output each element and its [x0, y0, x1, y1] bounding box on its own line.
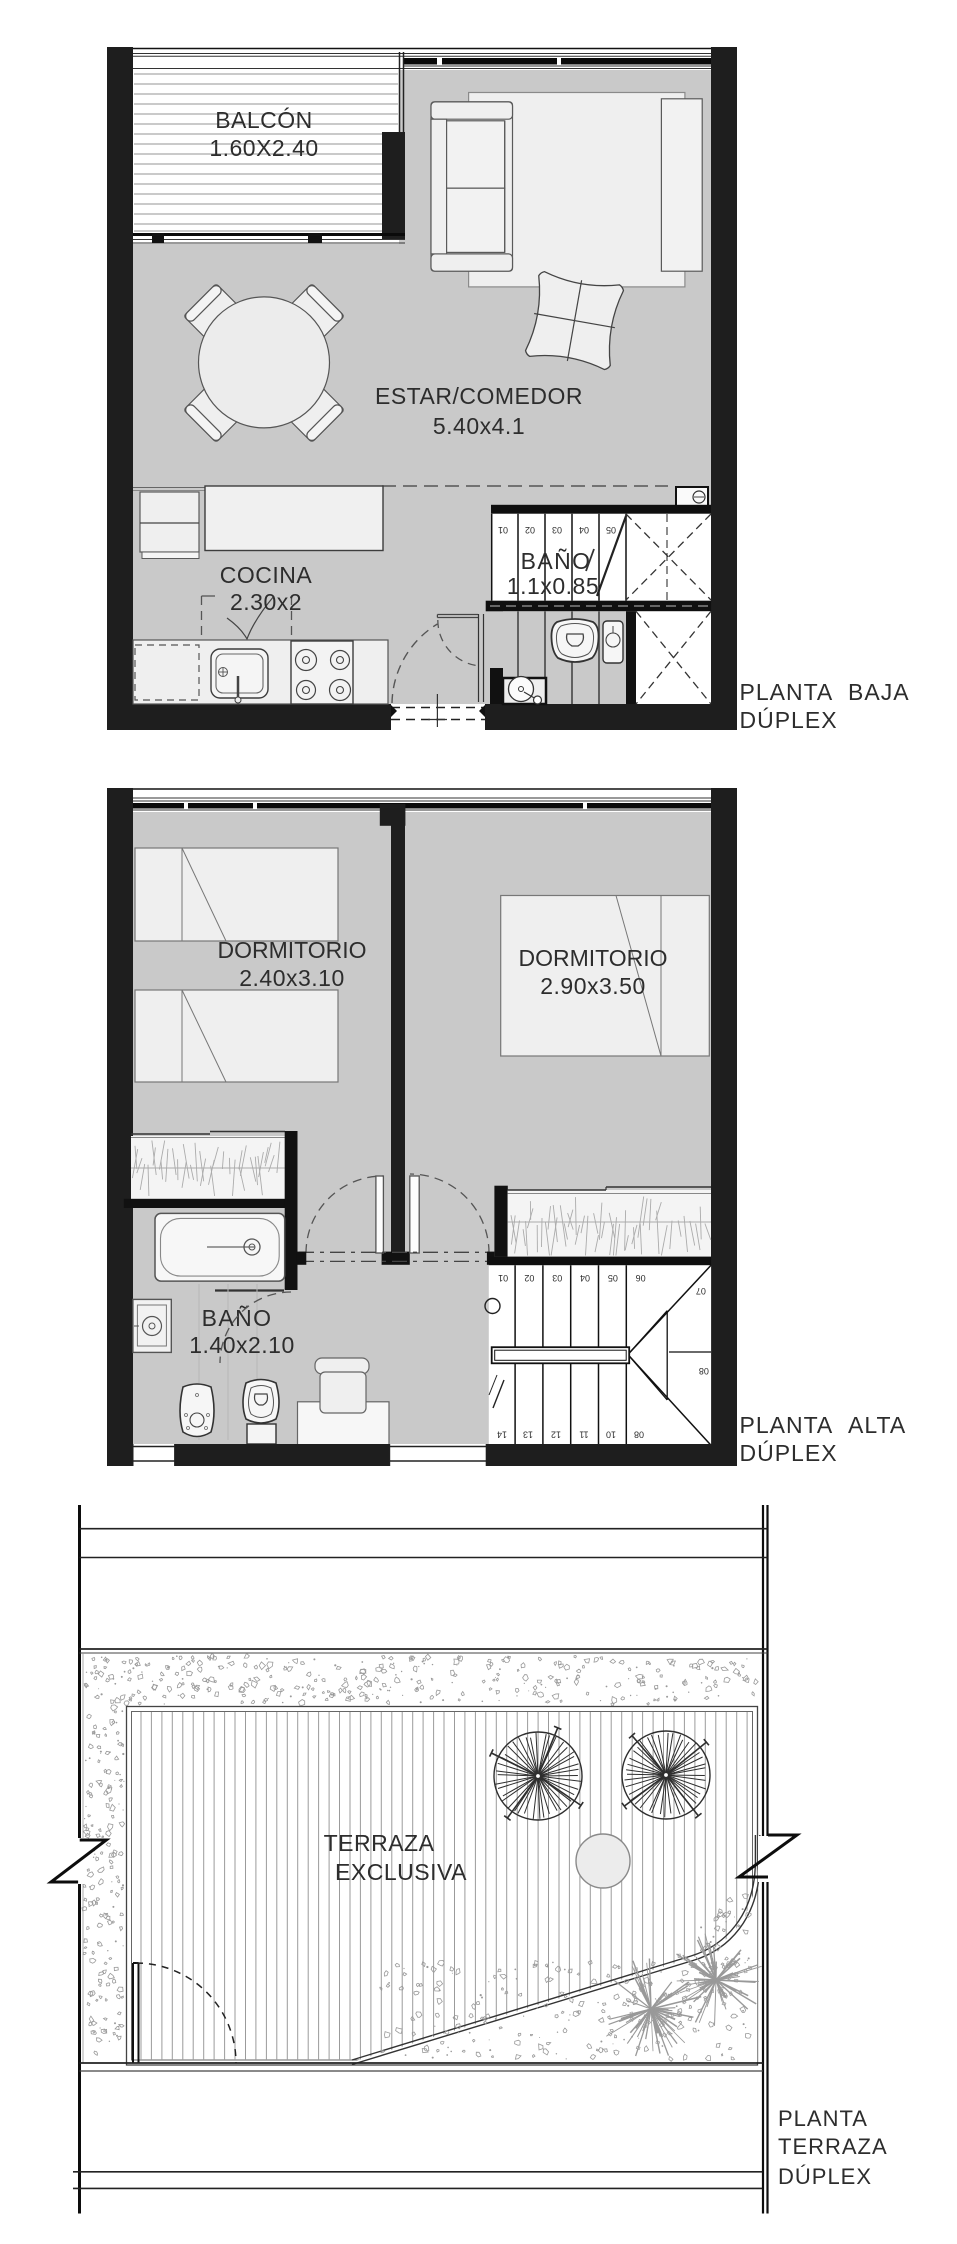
- svg-text:08: 08: [634, 1430, 644, 1440]
- svg-text:05: 05: [608, 1273, 618, 1283]
- svg-text:03: 03: [552, 1273, 562, 1283]
- svg-text:2.30x2: 2.30x2: [230, 589, 302, 615]
- svg-text:14: 14: [497, 1430, 507, 1440]
- svg-text:04: 04: [579, 525, 589, 535]
- svg-text:BAÑO: BAÑO: [202, 1305, 273, 1331]
- svg-text:03: 03: [552, 525, 562, 535]
- svg-text:13: 13: [523, 1430, 533, 1440]
- svg-text:2.40x3.10: 2.40x3.10: [239, 965, 345, 991]
- svg-text:1.1x0.85: 1.1x0.85: [507, 573, 599, 599]
- svg-text:PLANTA: PLANTA: [778, 2106, 868, 2131]
- svg-text:08: 08: [699, 1366, 709, 1376]
- svg-text:07: 07: [696, 1286, 706, 1296]
- svg-text:DORMITORIO: DORMITORIO: [217, 937, 366, 963]
- svg-text:TERRAZA: TERRAZA: [324, 1830, 435, 1856]
- svg-text:04: 04: [580, 1273, 590, 1283]
- svg-text:10: 10: [606, 1430, 616, 1440]
- svg-text:1.40x2.10: 1.40x2.10: [189, 1332, 295, 1358]
- svg-text:05: 05: [606, 525, 616, 535]
- svg-text:02: 02: [524, 1273, 534, 1283]
- svg-text:12: 12: [551, 1430, 561, 1440]
- svg-text:1.60X2.40: 1.60X2.40: [209, 135, 318, 161]
- svg-text:EXCLUSIVA: EXCLUSIVA: [335, 1859, 467, 1885]
- svg-text:DORMITORIO: DORMITORIO: [518, 945, 667, 971]
- svg-text:BAÑO: BAÑO: [521, 548, 592, 574]
- svg-text:PLANTA ALTA: PLANTA ALTA: [740, 1412, 907, 1438]
- svg-text:2.90x3.50: 2.90x3.50: [540, 973, 646, 999]
- svg-text:06: 06: [636, 1273, 646, 1283]
- svg-text:ESTAR/COMEDOR: ESTAR/COMEDOR: [375, 383, 583, 409]
- svg-text:01: 01: [498, 1273, 508, 1283]
- svg-text:01: 01: [498, 525, 508, 535]
- svg-text:5.40x4.1: 5.40x4.1: [433, 413, 525, 439]
- svg-text:BALCÓN: BALCÓN: [215, 107, 313, 133]
- svg-text:COCINA: COCINA: [220, 562, 313, 588]
- svg-text:DÚPLEX: DÚPLEX: [740, 1440, 838, 1466]
- svg-text:11: 11: [579, 1430, 588, 1440]
- svg-text:DÚPLEX: DÚPLEX: [740, 707, 838, 733]
- svg-text:DÚPLEX: DÚPLEX: [778, 2164, 872, 2189]
- svg-text:TERRAZA: TERRAZA: [778, 2134, 888, 2159]
- svg-text:02: 02: [525, 525, 535, 535]
- svg-text:PLANTA BAJA: PLANTA BAJA: [740, 679, 910, 705]
